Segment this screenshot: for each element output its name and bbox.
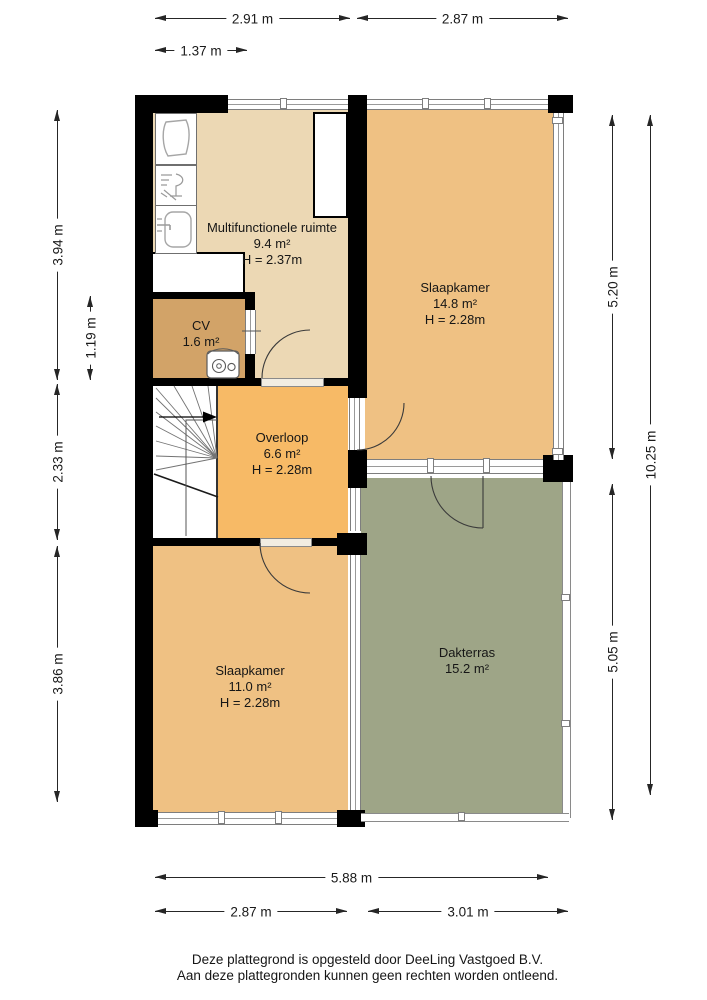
dimension-left-3-94: 3.94 m: [57, 110, 58, 380]
dimension-right-5-20: 5.20 m: [612, 115, 613, 459]
arrowhead-up: [54, 546, 60, 557]
arrowhead-up: [609, 484, 615, 495]
cv-boiler-icon: [207, 349, 239, 378]
dimension-label: 3.86 m: [51, 647, 66, 700]
door-arc-slaapkamer-boven: [357, 403, 404, 450]
door-arc-dakterras: [431, 476, 483, 528]
dimension-label: 2.91 m: [226, 12, 279, 27]
room-height: H = 2.28m: [375, 312, 535, 328]
room-name: Overloop: [202, 430, 362, 446]
room-name: CV: [161, 318, 241, 334]
door-arc-multifunctionele-ruimte: [262, 330, 310, 378]
room-area: 1.6 m²: [161, 334, 241, 350]
dimension-label: 2.87 m: [224, 905, 277, 920]
door-arc-slaapkamer-onder: [260, 543, 310, 593]
label-dakterras: Dakterras 15.2 m²: [387, 645, 547, 677]
dimension-left-1-19: 1.19 m: [90, 296, 91, 380]
label-slaapkamer-onder: Slaapkamer 11.0 m² H = 2.28m: [170, 663, 330, 711]
dimension-left-2-33: 2.33 m: [57, 384, 58, 540]
dimension-bottom-2-87: 2.87 m: [155, 911, 347, 912]
dimension-label: 5.05 m: [606, 625, 621, 678]
dimension-left-3-86: 3.86 m: [57, 546, 58, 802]
room-height: H = 2.28m: [202, 462, 362, 478]
footer-disclaimer: Deze plattegrond is opgesteld door DeeLi…: [0, 952, 707, 984]
arrowhead-right: [537, 874, 548, 880]
floorplan-page: Multifunctionele ruimte 9.4 m² H = 2.37m…: [0, 0, 707, 1000]
room-area: 6.6 m²: [202, 446, 362, 462]
dimension-label: 3.94 m: [51, 218, 66, 271]
arrowhead-up: [647, 115, 653, 126]
dimension-bottom-5-88: 5.88 m: [155, 877, 548, 878]
room-area: 15.2 m²: [387, 661, 547, 677]
label-multifunctionele-ruimte: Multifunctionele ruimte 9.4 m² H = 2.37m: [191, 220, 353, 268]
footer-line-1: Deze plattegrond is opgesteld door DeeLi…: [28, 952, 707, 968]
arrowhead-up: [87, 296, 93, 307]
dimension-right-5-05: 5.05 m: [612, 484, 613, 820]
label-slaapkamer-boven: Slaapkamer 14.8 m² H = 2.28m: [375, 280, 535, 328]
arrowhead-up: [54, 110, 60, 121]
arrowhead-down: [54, 529, 60, 540]
arrowhead-down: [609, 809, 615, 820]
arrowhead-down: [54, 791, 60, 802]
arrowhead-up: [609, 115, 615, 126]
dimension-label: 1.19 m: [84, 311, 99, 364]
arrowhead-right: [339, 15, 350, 21]
arrowhead-right: [557, 908, 568, 914]
dimension-bottom-3-01: 3.01 m: [368, 911, 568, 912]
room-height: H = 2.28m: [170, 695, 330, 711]
dimension-label: 5.88 m: [325, 871, 378, 886]
arrowhead-right: [236, 47, 247, 53]
room-height: H = 2.37m: [191, 252, 353, 268]
arrowhead-up: [54, 384, 60, 395]
dimension-top-2-91: 2.91 m: [155, 18, 350, 19]
dimension-label: 10.25 m: [644, 425, 659, 486]
dimension-label: 2.33 m: [51, 435, 66, 488]
arrowhead-left: [155, 15, 166, 21]
room-name: Slaapkamer: [170, 663, 330, 679]
dimension-label: 5.20 m: [606, 260, 621, 313]
room-name: Dakterras: [387, 645, 547, 661]
arrowhead-right: [336, 908, 347, 914]
dimension-top-2-87: 2.87 m: [357, 18, 568, 19]
room-name: Multifunctionele ruimte: [191, 220, 353, 236]
label-cv: CV 1.6 m²: [161, 318, 241, 350]
label-overloop: Overloop 6.6 m² H = 2.28m: [202, 430, 362, 478]
room-area: 9.4 m²: [191, 236, 353, 252]
arrowhead-left: [155, 874, 166, 880]
room-area: 11.0 m²: [170, 679, 330, 695]
room-name: Slaapkamer: [375, 280, 535, 296]
arrowhead-left: [357, 15, 368, 21]
arrowhead-down: [609, 448, 615, 459]
arrowhead-down: [54, 369, 60, 380]
dimension-label: 3.01 m: [441, 905, 494, 920]
arrowhead-left: [155, 47, 166, 53]
plan-vector-overlay: [0, 0, 707, 1000]
arrowhead-right: [557, 15, 568, 21]
dimension-label: 1.37 m: [174, 44, 227, 59]
arrowhead-down: [647, 784, 653, 795]
room-area: 14.8 m²: [375, 296, 535, 312]
dimension-right-10-25: 10.25 m: [650, 115, 651, 795]
arrowhead-left: [155, 908, 166, 914]
dimension-top-1-37: 1.37 m: [155, 50, 247, 51]
arrowhead-down: [87, 369, 93, 380]
arrowhead-left: [368, 908, 379, 914]
footer-line-2: Aan deze plattegronden kunnen geen recht…: [28, 968, 707, 984]
dimension-label: 2.87 m: [436, 12, 489, 27]
